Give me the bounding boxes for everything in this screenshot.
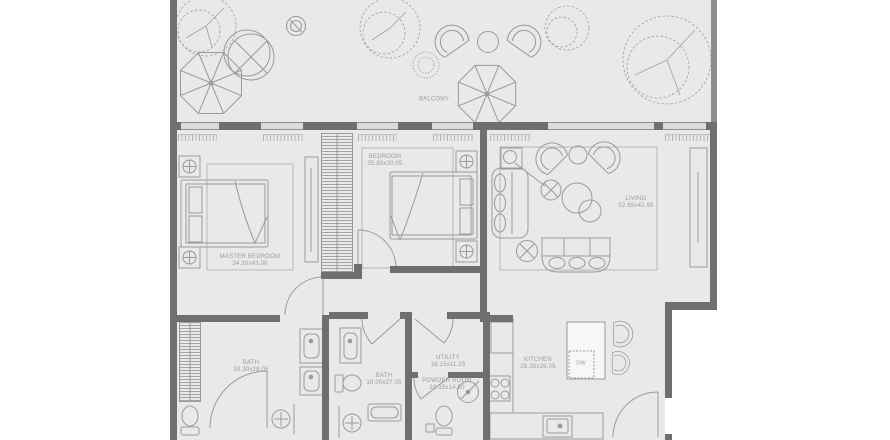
balcony-planter	[287, 17, 306, 36]
door-bath-1	[210, 371, 267, 428]
living-floor-lamp-1	[541, 180, 561, 200]
living-armchair-1	[529, 136, 569, 176]
living-armchair-2	[587, 135, 627, 175]
door-utility	[415, 319, 453, 343]
bedroom-bed	[390, 172, 477, 240]
bath2-toilet	[335, 375, 361, 392]
kitchen-fridge	[491, 322, 513, 353]
bath2-tub	[368, 404, 401, 421]
balcony-chair-1	[428, 18, 470, 58]
bath1-label: BATH30.30x28.05	[233, 360, 268, 374]
master-nightstand-lamp-1	[179, 156, 200, 177]
balcony-chair-2	[505, 18, 547, 58]
master-nightstand-lamp-2	[179, 247, 200, 268]
curtain-symbol	[665, 134, 710, 141]
parasol-umbrella-1	[181, 53, 242, 114]
bath2-pedestal-sink	[339, 406, 361, 438]
curtain-symbol	[358, 134, 397, 141]
wall-segment	[354, 264, 362, 274]
window	[663, 122, 706, 130]
kitchen-island	[567, 322, 605, 379]
powder-toilet	[426, 406, 452, 435]
wall-segment	[390, 266, 480, 273]
bath1-toilet	[181, 406, 199, 435]
kitchen-stool-2	[612, 351, 629, 374]
living-side-table	[569, 146, 587, 164]
wardrobe-panel	[305, 157, 318, 262]
utility-label: UTILITY16.15x11.25	[431, 355, 466, 369]
master-bedroom-label: MASTER BEDROOM34.30x43.00	[220, 254, 280, 268]
bedroom-nightstand-lamp-1	[456, 151, 477, 172]
balcony-right-wall	[711, 0, 717, 122]
bath2-vanity	[340, 328, 361, 363]
wall-segment	[447, 312, 483, 319]
kitchen-stool-1	[614, 321, 633, 347]
wall-segment	[710, 122, 717, 309]
living-sofa-bottom	[542, 238, 610, 272]
tv-console	[690, 148, 707, 267]
curtain-symbol	[263, 134, 303, 141]
wall-segment	[405, 312, 412, 440]
bedroom-label: BEDROOM35.80x30.05	[367, 154, 402, 168]
wall-segment	[665, 310, 672, 398]
living-sofa-left	[492, 168, 528, 238]
wall-segment	[665, 302, 717, 310]
living-coffee-tables	[562, 183, 601, 222]
parasol-umbrella-2	[458, 65, 515, 122]
wall-segment	[329, 312, 368, 319]
door-entry	[613, 392, 658, 437]
wall-segment	[322, 315, 329, 440]
wall-segment	[483, 312, 490, 440]
door-master-bedroom	[285, 277, 323, 315]
furniture-layer	[0, 0, 890, 440]
bath1-vanity-1	[300, 329, 323, 363]
powder-room-label: POWDER ROOM16.15x14.80	[422, 378, 472, 392]
wall-segment	[480, 130, 487, 322]
balcony-label: BALCONY	[419, 97, 449, 104]
bath1-pedestal-sink	[272, 404, 294, 434]
door-bath-2	[362, 319, 400, 344]
dishwasher-label: DW	[576, 361, 586, 368]
kitchen-stove	[489, 376, 510, 401]
kitchen-sink-counter	[490, 413, 603, 439]
bath1-vanity-2	[300, 367, 323, 395]
balcony-tree-branches	[186, 8, 695, 95]
balcony-round-table	[224, 30, 274, 80]
bath2-label: BATH18.00x27.05	[366, 373, 401, 387]
window	[357, 122, 398, 130]
window	[261, 122, 303, 130]
curtain-symbol	[433, 134, 473, 141]
wall-segment	[177, 315, 280, 322]
wall-segment	[170, 0, 177, 440]
curtain-symbol	[178, 134, 217, 141]
floor-plan: BALCONY MASTER BEDROOM34.30x43.00 BEDROO…	[0, 0, 890, 440]
wall-segment	[412, 372, 418, 378]
window	[548, 122, 654, 130]
balcony-side-table	[478, 32, 499, 53]
window	[181, 122, 219, 130]
master-bed	[181, 180, 268, 247]
curtain-symbol	[490, 134, 530, 141]
wall-segment	[665, 434, 672, 440]
bedroom-nightstand-lamp-2	[456, 241, 477, 262]
living-label: LIVING52.85x42.95	[618, 196, 653, 210]
window	[432, 122, 473, 130]
living-floor-lamp-2	[517, 241, 538, 262]
kitchen-label: KITCHEN28.35x28.05	[520, 357, 555, 371]
